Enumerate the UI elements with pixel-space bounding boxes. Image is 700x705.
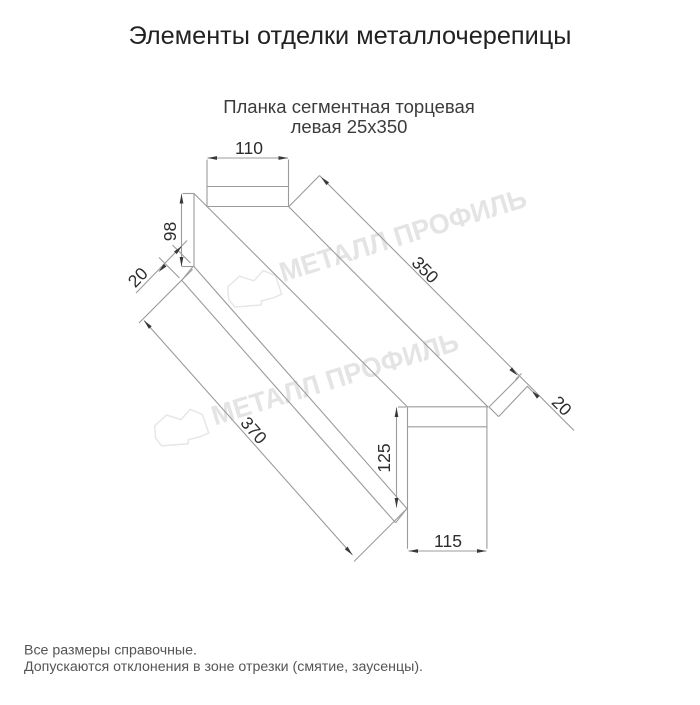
svg-text:МЕТАЛЛ ПРОФИЛЬ: МЕТАЛЛ ПРОФИЛЬ <box>276 182 531 288</box>
svg-text:Планка сегментная торцевая: Планка сегментная торцевая <box>223 96 475 117</box>
svg-text:Элементы отделки металлочерепи: Элементы отделки металлочерепицы <box>129 22 572 50</box>
svg-text:20: 20 <box>548 392 576 420</box>
svg-text:98: 98 <box>160 222 180 241</box>
svg-text:350: 350 <box>408 252 443 287</box>
svg-text:МЕТАЛЛ ПРОФИЛЬ: МЕТАЛЛ ПРОФИЛЬ <box>208 326 463 432</box>
svg-text:125: 125 <box>374 443 394 472</box>
svg-text:20: 20 <box>124 263 152 291</box>
svg-text:115: 115 <box>434 531 462 551</box>
svg-text:110: 110 <box>235 138 263 158</box>
svg-text:Допускаются отклонения в зоне: Допускаются отклонения в зоне отрезки (с… <box>24 659 423 675</box>
svg-text:Все размеры справочные.: Все размеры справочные. <box>24 643 197 659</box>
svg-text:левая 25х350: левая 25х350 <box>291 116 408 137</box>
